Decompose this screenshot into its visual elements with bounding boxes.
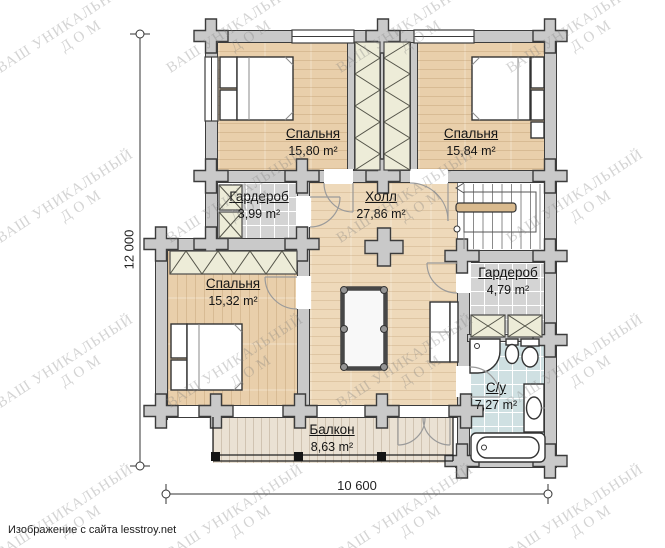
stair-handrail	[456, 203, 516, 212]
door-swing	[265, 277, 297, 309]
floor-plan-vector-overlay	[0, 0, 665, 548]
door-swing	[310, 197, 340, 227]
dimension-height-label: 12 000	[122, 221, 137, 279]
hall-column-cross	[365, 228, 403, 266]
balcony-french-doors	[398, 418, 450, 445]
sink-vanity	[524, 384, 545, 432]
room-label-hall: Холл 27,86 m²	[356, 188, 405, 222]
floor-plan: Спальня 15,80 m² Спальня 15,84 m² Гардер…	[0, 0, 665, 548]
sofa	[430, 302, 458, 362]
billiard-table	[341, 287, 388, 371]
bidet	[506, 339, 519, 364]
room-label-bathroom: С/у 7,27 m²	[475, 379, 517, 413]
room-label-wardrobe-small: Гардероб 3,99 m²	[229, 188, 288, 222]
room-label-bedroom-top-left: Спальня 15,80 m²	[286, 125, 340, 159]
door-swing	[427, 263, 457, 293]
room-label-bedroom-top-right: Спальня 15,84 m²	[444, 125, 498, 159]
bed	[171, 324, 242, 390]
room-label-balcony: Балкон 8,63 m²	[309, 421, 354, 455]
image-credit: Изображение с сайта lesstroy.net	[8, 524, 176, 536]
door-swing	[410, 183, 448, 221]
room-label-bedroom-left: Спальня 15,32 m²	[206, 275, 260, 309]
bathtub	[471, 433, 545, 462]
toilet	[521, 339, 539, 367]
dimension-width-label: 10 600	[337, 478, 377, 493]
bed	[220, 57, 293, 120]
stair-direction-arrow	[456, 183, 464, 193]
room-label-wardrobe-large: Гардероб 4,79 m²	[478, 264, 537, 298]
